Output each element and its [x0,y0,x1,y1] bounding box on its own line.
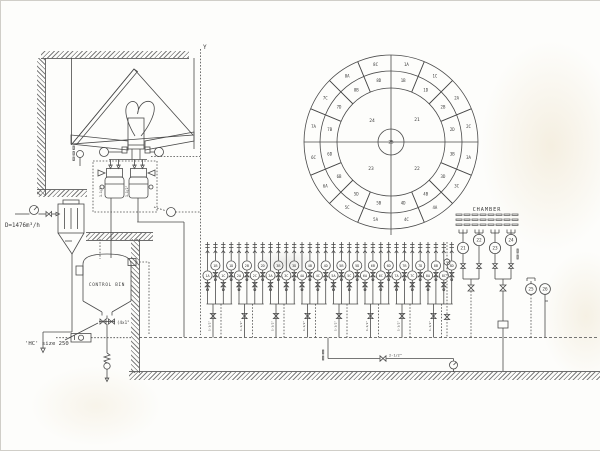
cell-valve-label: 6B [371,264,375,268]
chamber-section-title: CHAMBER [473,207,502,213]
gauge-icon [155,148,164,157]
relief-valve-icon [104,353,110,363]
hopper-wedge-left [71,135,128,150]
cyclone-cone [58,233,84,254]
cell-valve-label: 1D [229,264,233,268]
cell-list-text [512,224,518,225]
chamber-cell-label: 8C [373,62,378,67]
cell-valve-label: 2A [237,274,242,278]
chamber-quadrant-label: 22 [414,166,420,172]
cell-list-text [488,224,494,225]
solenoid-block [498,321,508,328]
engineering-drawing: Y [0,0,600,451]
valve-icon [493,264,498,269]
chamber-quadrant-label: 24 [369,118,375,124]
blaster-vessel [129,177,148,198]
cell-valve-label: 5A [331,274,336,278]
quadrant-valve-label: 21 [460,246,466,252]
cell-valve-label: 6A [363,274,368,278]
valve-icon [46,212,52,217]
cell-valve-label: 8B [434,264,438,268]
chamber-cell-label: 6B [337,174,342,179]
chamber-cell-label: 4A [432,205,437,210]
cell-valve-label: 2C [253,274,257,278]
cell-list-text [488,214,494,215]
cell-valve-label: 8D [450,264,454,268]
level-switch-icon [77,151,84,158]
pipe-size-label: 1-1/2" [208,321,212,331]
chamber-cell-label: 6A [323,183,328,188]
chamber-cell-label: 7B [327,127,332,132]
chamber-cell-label: 3D [441,174,446,179]
cell-valve-label: 7C [410,274,414,278]
cell-list-text [456,224,462,225]
cell-list-text [480,224,486,225]
chamber-cell-label: 8D [376,78,381,83]
valve-icon [461,264,466,269]
control-bin-label: CONTROL BIN [89,282,125,288]
chamber-cell-label: 8A [345,74,350,79]
cell-list-text [456,219,462,220]
cell-list-text [480,219,486,220]
manifold-cluster-6: 6A6B6C6D1-1/2" [360,242,393,338]
cell-valve-label: 7B [402,264,406,268]
manifold-cluster-8: 8A8B8C8D1-1/2" [423,242,456,338]
corner-mark: Y [203,44,207,51]
cell-list-text [472,219,478,220]
cell-valve-label: 8C [442,274,446,278]
cell-valve-label: 2D [261,264,265,268]
hc-size-label: 'HC' size 250 [25,341,69,347]
cell-list-text [472,214,478,215]
chamber-cell-label: 3B [450,152,455,157]
chamber-cell-label: 2A [454,96,459,101]
manifold-cluster-1: 1A1B1C1D1-1/2" [203,242,236,338]
cell-valve-label: 5C [347,274,351,278]
cell-valve-label: 4C [316,274,320,278]
cell-list-text [496,224,502,225]
cell-list-text [504,214,510,215]
control-bin-group: CONTROL BIN (4x1" 'HC' size 250 [25,239,149,382]
cell-list-text [512,214,518,215]
chamber-cell-label: 3A [466,155,471,160]
chamber-cell-label: 6D [327,152,332,157]
chamber-cell-label: 7C [323,96,328,101]
manifold-cluster-5: 5A5B5C5D1-1/2" [329,242,362,338]
chamber-cell-label: 3C [454,183,459,188]
cell-list-text [464,214,470,215]
cell-list-text [464,224,470,225]
cell-valve-label: 3B [276,264,280,268]
valve-icon [380,356,386,361]
cell-valve-label: 5D [355,264,359,268]
pipe-size-label: 2-1/2" [389,354,402,358]
pit-outlet [128,118,144,149]
chamber-cell-label: 2B [441,105,446,110]
chamber-center-label: 25 [388,140,394,146]
cell-list-text [504,224,510,225]
cell-valve-label: 3D [292,264,296,268]
cell-valve-label: 5B [339,264,343,268]
manifold-cluster-4: 4A4B4C4D1-1/2" [297,242,330,338]
storage-pit: Y [71,44,207,335]
chamber-quadrant-label: 23 [368,166,374,172]
cell-list-text [512,219,518,220]
instrument-icon [167,208,176,217]
cell-valve-label: 3C [284,274,288,278]
chamber-cell-label: 7A [311,124,316,129]
chamber-quadrant-label: 21 [414,117,420,123]
cell-valve-label: 4D [324,264,328,268]
cell-valve-label: 6D [387,264,391,268]
cell-valve-label: 4B [308,264,312,268]
chamber-cell-label: 4C [404,217,409,222]
air-blaster-units: 1-1/2" 1-1/2" [93,149,200,337]
blaster-vessel [105,177,124,198]
discharge-plume [126,101,154,136]
valve-icon [500,285,506,291]
pipe-size-label: 1-1/2" [125,185,129,197]
cell-list-text [488,219,494,220]
dust-filter: D=1476m³/h [5,200,84,353]
pipe-size-label: 1-1/2" [365,321,369,331]
chamber-cell-label: 2C [466,124,471,129]
pipe-size-label: 1-1/2" [334,321,338,331]
main-air-header: 2-1/2" [91,338,598,373]
valve-icon [477,264,482,269]
chamber-cell-label: 2D [450,127,455,132]
cell-list-text [464,219,470,220]
chamber-cell-label: 4D [401,201,406,206]
pipe-size-label: 1-1/2" [428,321,432,331]
quadrant-valve-label: 23 [492,246,498,252]
manifold-cluster-2: 2A2B2C2D1-1/2" [234,242,267,338]
cell-valve-label: 8A [426,274,431,278]
pipe-size-label: 1-1/2" [239,321,243,331]
quadrant-valve-label: 24 [508,238,514,244]
flow-rate-label: D=1476m³/h [5,222,40,229]
valve-icon [509,264,514,269]
cell-valve-label: 7A [394,274,399,278]
pipe-size-label: 1-1/2" [99,185,103,197]
chamber-cell-label: 1D [423,87,428,92]
material-pile [72,69,193,144]
cell-valve-label: 2B [245,264,249,268]
chamber-cell-label: 7D [337,105,342,110]
manifold-cluster-7: 7A7B7C7D1-1/2" [392,242,425,338]
chamber-cell-label: 5C [345,205,350,210]
manifold-cluster-3: 3A3B3C3D1-1/2" [266,242,299,338]
chamber-cell-label: 1B [401,78,406,83]
valve-manifold: 1A1B1C1D1-1/2"2A2B2C2D1-1/2"3A3B3C3D1-1/… [203,242,456,338]
cell-valve-label: 7D [418,264,422,268]
cell-valve-label: 4A [300,274,305,278]
cell-list-text [480,214,486,215]
cell-valve-label: 1B [213,264,217,268]
cell-list-text [472,224,478,225]
chamber-cell-label: 1C [432,74,437,79]
chamber-cell-label: 4B [423,191,428,196]
cell-list-text [496,214,502,215]
chamber-cell-label: 1A [404,62,409,67]
outlet-valves-label: (4x1" [117,320,130,325]
chamber-cell-label: 5B [376,201,381,206]
hopper-wedge-right [145,132,194,150]
gauge-icon [100,148,109,157]
pipe-size-label: 1-1/2" [302,321,306,331]
instrument-label: 26 [542,287,548,293]
cell-valve-label: 6C [379,274,383,278]
chamber-cell-label: 8B [354,87,359,92]
cell-list-text [456,214,462,215]
chamber-cell-label: 6C [311,155,316,160]
cell-list-text [504,219,510,220]
cell-list-text [496,219,502,220]
cell-valve-label: 1C [221,274,225,278]
pipe-size-label: 1-1/2" [397,321,401,331]
cell-valve-label: 3A [268,274,273,278]
chamber-feed-section: CHAMBER212223242526 [444,207,550,371]
pipe-size-label: 1-1/2" [271,321,275,331]
chamber-cell-label: 5A [373,217,378,222]
valve-icon [468,285,474,291]
chamber-layout-diagram: 1A1B1C1D2A2B2C2D3A3B3C3D4A4B4C4D5A5B5C5D… [304,55,478,235]
cell-valve-label: 1A [205,274,210,278]
quadrant-valve-label: 22 [476,238,482,244]
instrument-label: 25 [528,287,534,293]
chamber-cell-label: 5D [354,191,359,196]
